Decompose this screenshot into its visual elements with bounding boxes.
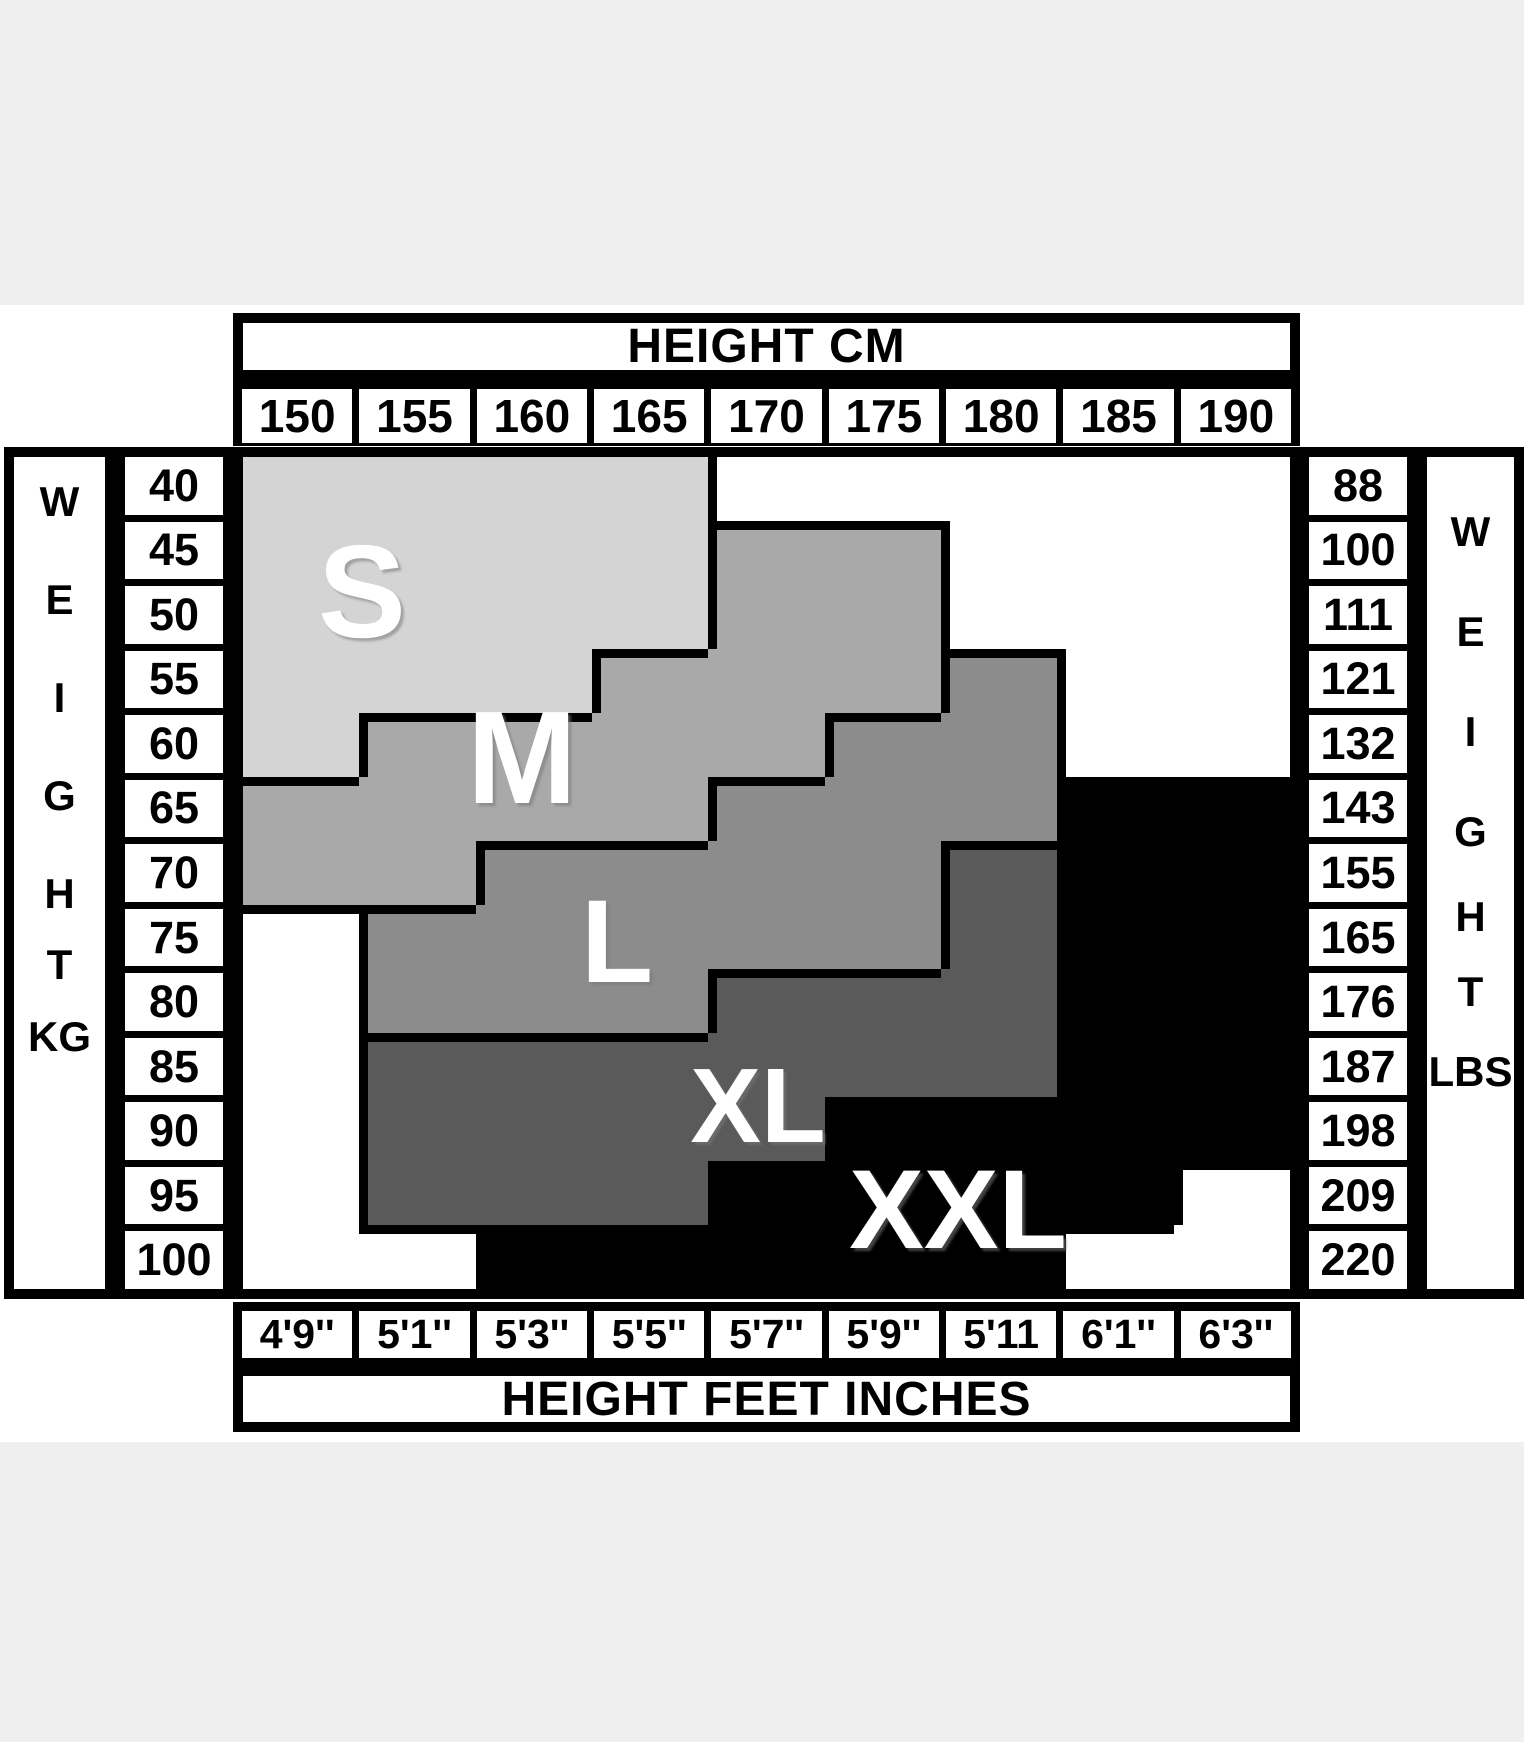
size-cell [825, 777, 941, 841]
size-cell [359, 1033, 475, 1097]
size-cell [359, 1225, 475, 1289]
size-cell [243, 1097, 359, 1161]
size-cell [243, 777, 359, 841]
weight-kg-tick: 80 [125, 973, 223, 1031]
size-cell [941, 521, 1057, 585]
size-cell [708, 905, 824, 969]
size-cell [1057, 585, 1173, 649]
weight-lbs-tick: 198 [1309, 1102, 1407, 1160]
weight-axis-letter: E [1456, 608, 1484, 656]
size-cell [825, 905, 941, 969]
weight-lbs-tick: 155 [1309, 844, 1407, 902]
size-cell [708, 777, 824, 841]
size-cell [1057, 841, 1173, 905]
size-cell [243, 841, 359, 905]
size-cell [243, 713, 359, 777]
size-cell [941, 905, 1057, 969]
height-cm-axis: 150155160165170175180185190 [233, 380, 1300, 446]
weight-kg-axis-panel: WEIGHTKG [4, 447, 115, 1299]
size-region-label: M [467, 692, 577, 824]
size-cell [476, 1225, 592, 1289]
size-cell [359, 905, 475, 969]
weight-axis-letter: I [1465, 708, 1477, 756]
size-cell [941, 457, 1057, 521]
size-cell [359, 457, 475, 521]
size-cell [592, 1225, 708, 1289]
weight-axis-letter: T [1458, 968, 1484, 1016]
weight-axis-letter: W [40, 478, 80, 526]
size-cell [708, 649, 824, 713]
size-cell [1174, 713, 1290, 777]
size-cell [825, 969, 941, 1033]
size-cell [825, 1033, 941, 1097]
size-cell [708, 457, 824, 521]
height-ft-tick: 5'5'' [594, 1311, 704, 1358]
weight-kg-tick: 65 [125, 780, 223, 838]
weight-kg-tick: 40 [125, 457, 223, 515]
size-cell [708, 585, 824, 649]
weight-kg-tick: 75 [125, 909, 223, 967]
size-cell [1057, 905, 1173, 969]
size-cell [1057, 1033, 1173, 1097]
size-cell [243, 457, 359, 521]
size-cell [592, 457, 708, 521]
weight-lbs-tick: 88 [1309, 457, 1407, 515]
size-cell [476, 841, 592, 905]
size-cell [476, 905, 592, 969]
height-cm-tick: 185 [1063, 389, 1173, 443]
height-ft-tick: 5'3'' [477, 1311, 587, 1358]
size-cell [1174, 1097, 1290, 1161]
size-cell [476, 1161, 592, 1225]
height-cm-tick: 155 [359, 389, 469, 443]
size-cell [1057, 1161, 1173, 1225]
size-cell [941, 585, 1057, 649]
weight-kg-tick: 100 [125, 1231, 223, 1289]
size-cell [708, 521, 824, 585]
weight-kg-tick: 55 [125, 651, 223, 709]
size-cell [359, 777, 475, 841]
weight-kg-tick: 95 [125, 1167, 223, 1225]
size-cell [1174, 1161, 1290, 1225]
size-cell [708, 841, 824, 905]
size-region-label: XXL [849, 1154, 1067, 1266]
size-cell [476, 457, 592, 521]
size-cell [1057, 457, 1173, 521]
size-cell [359, 713, 475, 777]
weight-kg-tick: 90 [125, 1102, 223, 1160]
height-cm-tick: 170 [711, 389, 821, 443]
size-cell [476, 1097, 592, 1161]
size-region-grid: SMLXLXXL [233, 447, 1300, 1299]
size-cell [708, 1161, 824, 1225]
size-cell [359, 1097, 475, 1161]
weight-kg-tick: 60 [125, 715, 223, 773]
height-ft-tick: 4'9'' [242, 1311, 352, 1358]
weight-lbs-tick: 176 [1309, 973, 1407, 1031]
height-cm-tick: 150 [242, 389, 352, 443]
height-ft-tick: 5'11 [946, 1311, 1056, 1358]
size-cell [1174, 1225, 1290, 1289]
size-cell [941, 777, 1057, 841]
height-feet-inches-title: HEIGHT FEET INCHES [233, 1366, 1300, 1432]
size-cell [1057, 777, 1173, 841]
weight-axis-letter: T [47, 941, 73, 989]
size-cell [1174, 649, 1290, 713]
size-cell [1057, 649, 1173, 713]
height-cm-title: HEIGHT CM [233, 313, 1300, 380]
weight-lbs-tick: 187 [1309, 1038, 1407, 1096]
bottom-gray-band [0, 1442, 1524, 1742]
height-cm-tick: 160 [477, 389, 587, 443]
size-cell [1174, 1033, 1290, 1097]
size-cell [243, 969, 359, 1033]
height-ft-tick: 6'1'' [1063, 1311, 1173, 1358]
size-cell [1174, 457, 1290, 521]
height-ft-axis: 4'9''5'1''5'3''5'5''5'7''5'9''5'116'1''6… [233, 1302, 1300, 1366]
size-cell [1174, 841, 1290, 905]
weight-axis-letter: I [54, 674, 66, 722]
weight-lbs-tick: 121 [1309, 651, 1407, 709]
size-cell [359, 969, 475, 1033]
size-cell [1174, 969, 1290, 1033]
weight-axis-unit: KG [28, 1013, 91, 1061]
size-cell [825, 841, 941, 905]
height-cm-tick: 190 [1181, 389, 1291, 443]
size-cell [243, 905, 359, 969]
size-cell [825, 457, 941, 521]
height-ft-tick: 5'9'' [829, 1311, 939, 1358]
weight-kg-tick: 45 [125, 522, 223, 580]
size-cell [476, 585, 592, 649]
size-cell [476, 521, 592, 585]
weight-lbs-tick: 220 [1309, 1231, 1407, 1289]
size-cell [592, 713, 708, 777]
size-cell [941, 969, 1057, 1033]
height-ft-tick: 5'1'' [359, 1311, 469, 1358]
weight-kg-labels: 404550556065707580859095100 [115, 447, 233, 1299]
size-cell [243, 1161, 359, 1225]
size-cell [825, 521, 941, 585]
weight-axis-unit: LBS [1429, 1048, 1513, 1096]
size-cell [1174, 905, 1290, 969]
size-cell [1057, 713, 1173, 777]
weight-lbs-labels: 88100111121132143155165176187198209220 [1299, 447, 1417, 1299]
size-cell [243, 1225, 359, 1289]
size-cell [708, 713, 824, 777]
size-cell [1057, 969, 1173, 1033]
size-cell [592, 777, 708, 841]
height-ft-tick: 5'7'' [711, 1311, 821, 1358]
size-cell [1057, 1225, 1173, 1289]
weight-axis-letter: E [45, 576, 73, 624]
size-region-label: L [581, 883, 653, 1001]
weight-lbs-tick: 143 [1309, 780, 1407, 838]
size-cell [359, 841, 475, 905]
height-cm-tick: 165 [594, 389, 704, 443]
weight-axis-letter: G [43, 772, 76, 820]
weight-lbs-tick: 209 [1309, 1167, 1407, 1225]
weight-axis-letter: H [1455, 893, 1485, 941]
weight-kg-tick: 70 [125, 844, 223, 902]
size-cell [941, 649, 1057, 713]
height-cm-tick: 180 [946, 389, 1056, 443]
size-cell [592, 521, 708, 585]
size-cell [1174, 585, 1290, 649]
weight-kg-tick: 85 [125, 1038, 223, 1096]
size-cell [592, 649, 708, 713]
size-cell [708, 969, 824, 1033]
top-gray-band [0, 0, 1524, 305]
size-cell [1174, 777, 1290, 841]
size-cell [592, 585, 708, 649]
weight-lbs-tick: 132 [1309, 715, 1407, 773]
size-cell [1057, 1097, 1173, 1161]
size-cell [476, 969, 592, 1033]
size-cell [476, 1033, 592, 1097]
size-cell [825, 713, 941, 777]
height-cm-tick: 175 [829, 389, 939, 443]
size-chart: HEIGHT CM 150155160165170175180185190 WE… [0, 0, 1524, 1742]
size-cell [941, 1033, 1057, 1097]
size-cell [1057, 521, 1173, 585]
weight-axis-letter: H [44, 870, 74, 918]
size-cell [1174, 521, 1290, 585]
size-cell [825, 585, 941, 649]
size-cell [359, 1161, 475, 1225]
weight-lbs-tick: 165 [1309, 909, 1407, 967]
size-cell [941, 841, 1057, 905]
size-cell [825, 649, 941, 713]
weight-lbs-tick: 100 [1309, 522, 1407, 580]
size-cell [592, 1161, 708, 1225]
size-cell [941, 713, 1057, 777]
size-cell [243, 1033, 359, 1097]
size-region-label: XL [690, 1053, 825, 1159]
weight-axis-letter: G [1454, 808, 1487, 856]
weight-axis-letter: W [1451, 508, 1491, 556]
size-cell [708, 1225, 824, 1289]
weight-lbs-axis-panel: WEIGHTLBS [1417, 447, 1524, 1299]
weight-lbs-tick: 111 [1309, 586, 1407, 644]
weight-kg-tick: 50 [125, 586, 223, 644]
height-ft-tick: 6'3'' [1181, 1311, 1291, 1358]
size-region-label: S [318, 526, 406, 658]
